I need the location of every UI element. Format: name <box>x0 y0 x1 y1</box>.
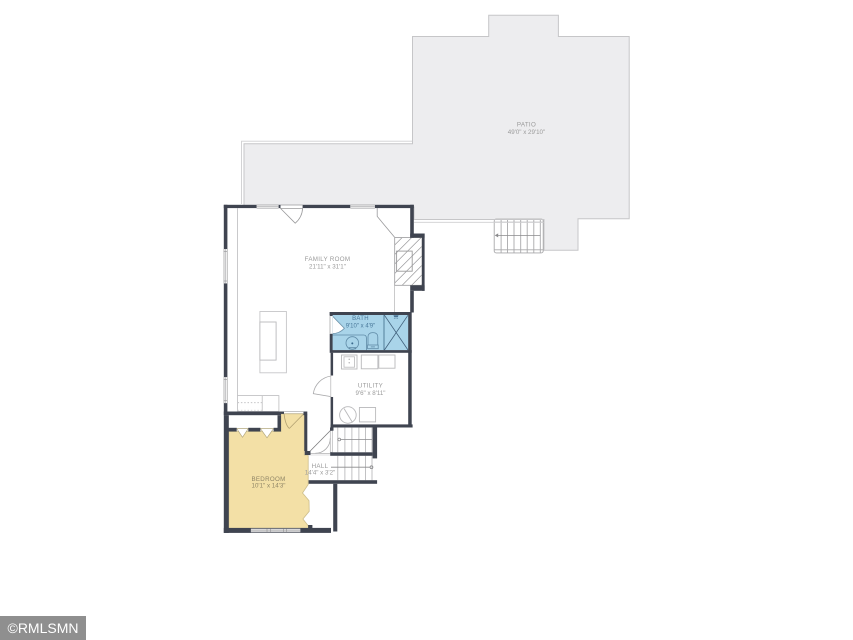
svg-text:14'4" x 3'2": 14'4" x 3'2" <box>305 470 336 477</box>
svg-text:49'0" x 29'10": 49'0" x 29'10" <box>508 129 545 136</box>
svg-text:9'6" x 8'11": 9'6" x 8'11" <box>355 390 385 397</box>
svg-text:BATH: BATH <box>352 316 369 322</box>
svg-text:FAMILY ROOM: FAMILY ROOM <box>305 256 351 263</box>
svg-text:PATIO: PATIO <box>517 121 536 128</box>
svg-text:9'10" x 4'9": 9'10" x 4'9" <box>346 323 376 329</box>
svg-text:21'11" x 31'1": 21'11" x 31'1" <box>309 264 346 271</box>
svg-text:UTILITY: UTILITY <box>358 383 383 390</box>
svg-text:10'1" x 14'3": 10'1" x 14'3" <box>252 482 286 489</box>
